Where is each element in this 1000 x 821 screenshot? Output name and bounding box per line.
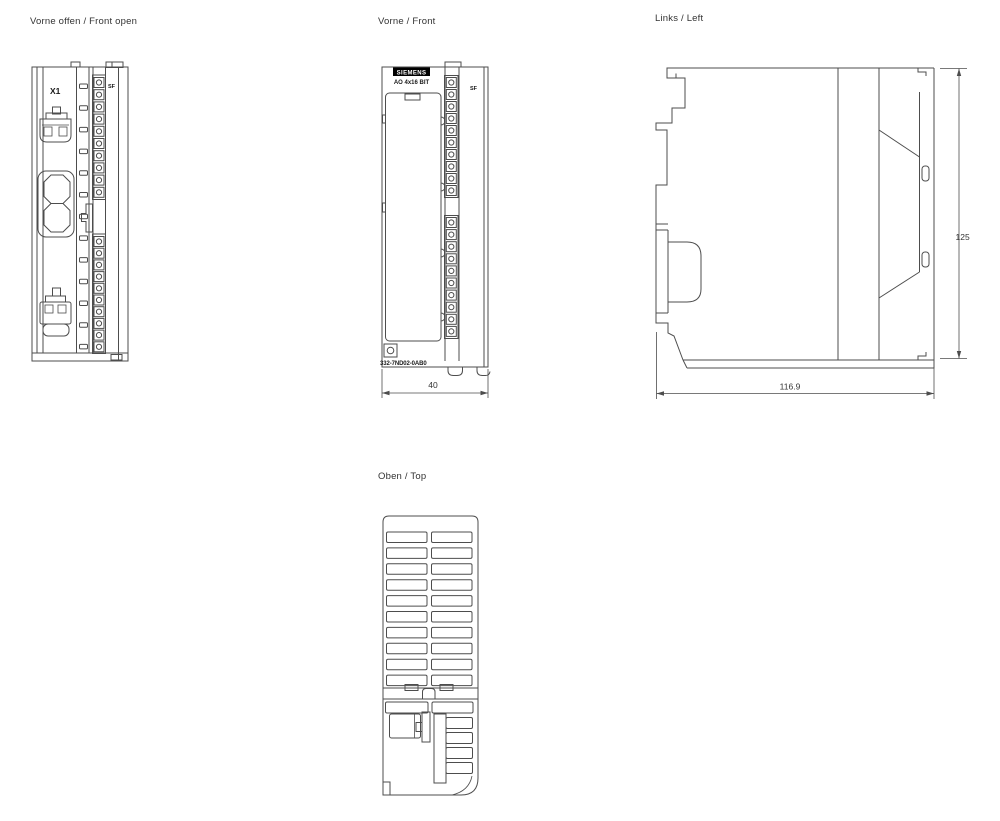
depth-dimension: 116.9 [657,332,935,399]
terminal-screw [449,268,454,273]
mounting-screw [384,344,397,357]
terminal-square [94,342,104,352]
slot [80,106,88,111]
slot [432,643,473,654]
bottom-tab-left [448,367,463,376]
terminal-square [94,260,104,270]
slot [80,193,88,198]
terminal-screw [96,117,101,122]
front-door [383,93,446,341]
terminal-screw [96,333,101,338]
terminal-screw [449,176,454,181]
terminal-square [446,126,456,136]
terminal-square [446,114,456,124]
slot [387,532,428,543]
sf-led-label: SF [108,84,116,90]
side-slot-upper [922,166,929,181]
terminal-square [446,102,456,112]
part-number-label: 332-7ND02-0AB0 [380,361,427,367]
terminal-screw [449,220,454,225]
slot-bars [80,84,88,349]
terminal-screw [449,244,454,249]
terminal-square [94,114,104,124]
terminal-square [446,242,456,252]
door-bottom-tab [111,355,122,361]
slot [80,301,88,306]
width-dimension: 40 [382,369,488,398]
terminal-screw [96,129,101,134]
vent-slots-right [432,532,473,686]
terminal-square [94,330,104,340]
slot [80,149,88,154]
terminal-square [446,326,456,336]
terminal-screw [449,164,454,169]
terminal-screw [449,116,454,121]
top-band [383,685,478,700]
slot [387,659,428,670]
top-title: Oben / Top [378,471,426,482]
slot [80,323,88,328]
terminal-screw [96,104,101,109]
terminal-slot-column [77,67,90,353]
slot [446,733,473,744]
lower-section [386,702,474,783]
terminal-square [446,150,456,160]
terminal-screw-column [445,67,460,361]
gland-octagon-lower [44,204,70,233]
center-tab [423,689,436,700]
gland-octagon-upper [44,175,70,204]
terminal-square [94,102,104,112]
terminal-screw [96,274,101,279]
bus-connector-protrusion [656,224,701,313]
terminal-square [446,218,456,228]
terminal-screw [96,92,101,97]
side-slot-lower [922,252,929,267]
slot [432,532,473,543]
terminal-square [94,187,104,197]
terminal-screw [96,178,101,183]
slot [80,258,88,263]
top-outline [383,516,478,795]
slot [446,718,473,729]
terminal-square [446,174,456,184]
slot [80,279,88,284]
terminal-square [446,314,456,324]
corner-arc [452,776,472,795]
sf-led-label: SF [470,86,478,92]
terminal-square [94,139,104,149]
terminal-square [94,126,104,136]
front-open-view: X1 SF [25,55,140,370]
slot [387,580,428,591]
terminal-screw [449,317,454,322]
terminal-screw [96,153,101,158]
terminal-screw [449,256,454,261]
terminal-screw [96,190,101,195]
slot [80,214,88,219]
module-type-label: AO 4x16 BIT [394,80,430,86]
vent-slots-left [387,532,428,686]
terminal-square [94,237,104,247]
terminal-screw [449,305,454,310]
slot [387,643,428,654]
terminal-square [94,90,104,100]
left-outline [656,68,934,368]
terminal-screw [449,92,454,97]
terminal-square [446,290,456,300]
height-dimension: 125 [940,69,970,359]
terminal-square [94,295,104,305]
terminal-square [94,175,104,185]
slot [387,548,428,559]
terminal-screw [449,232,454,237]
terminal-square [446,254,456,264]
terminal-square [94,248,104,258]
terminal-square [446,90,456,100]
terminal-screw [96,344,101,349]
terminal-screw [449,329,454,334]
terminal-square [94,318,104,328]
terminal-screw [449,128,454,133]
terminal-screw [96,80,101,85]
din-hook-bottom [918,352,926,360]
terminal-screw [449,188,454,193]
bottom-latch [40,288,71,336]
slot [432,564,473,575]
terminal-screw [449,280,454,285]
left-title: Links / Left [655,13,703,24]
slot [432,548,473,559]
slot [432,580,473,591]
terminal-group-top [94,78,104,198]
width-dimension-value: 40 [428,380,438,390]
terminal-screw [96,297,101,302]
terminal-screw [449,140,454,145]
terminal-group-bottom [446,218,456,337]
wide-slot-right [432,702,473,713]
terminal-screw [96,251,101,256]
left-view: 125 116.9 [645,55,990,405]
slot [387,564,428,575]
terminal-screw [449,293,454,298]
terminal-square [446,266,456,276]
slot [446,763,473,774]
terminal-group-bottom [94,237,104,352]
version-slot [405,94,420,100]
terminal-screw [449,80,454,85]
slot [446,748,473,759]
terminal-square [446,230,456,240]
slot [387,612,428,623]
front-title: Vorne / Front [378,16,436,27]
front-view: SIEMENS AO 4x16 BIT SF 332-7ND02-0AB0 [375,55,495,405]
slot [80,344,88,349]
terminal-screw [96,262,101,267]
siemens-logo: SIEMENS [393,68,430,77]
top-hook-tab [71,62,80,67]
terminal-square [94,151,104,161]
terminal-screw [96,165,101,170]
slot [432,659,473,670]
bottom-slot-column [446,718,473,774]
front-open-title: Vorne offen / Front open [30,16,137,27]
terminal-square [94,307,104,317]
terminal-square [94,272,104,282]
terminal-square [94,163,104,173]
slot [432,612,473,623]
top-latch [40,107,71,142]
slot [80,236,88,241]
x1-connector-label: X1 [50,86,61,96]
terminal-screw [96,321,101,326]
wide-slot-left [386,702,429,713]
depth-dimension-value: 116.9 [780,382,801,392]
terminal-screw [96,239,101,244]
siemens-brand-text: SIEMENS [397,70,427,76]
top-view [375,505,490,810]
slot [387,596,428,607]
terminal-square [94,78,104,88]
terminal-screw [96,286,101,291]
terminal-square [446,138,456,148]
terminal-square [446,186,456,196]
top-hook-tab [445,62,461,67]
left-body-lines [838,68,929,360]
bottom-left-notch [383,782,390,795]
front-outline [382,62,490,376]
slot [80,127,88,131]
terminal-group-top [446,78,456,196]
slot [80,171,88,176]
terminal-screw [449,104,454,109]
slot [432,596,473,607]
terminal-square [446,302,456,312]
slot [80,84,88,89]
slot [387,627,428,638]
dimension-drawing-page: Vorne offen / Front open Vorne / Front L… [0,0,1000,821]
slot [432,627,473,638]
terminal-square [446,78,456,88]
terminal-screw [96,309,101,314]
terminal-screw [449,152,454,157]
terminal-square [94,283,104,293]
height-dimension-value: 125 [956,232,970,242]
latch-lever [668,242,701,302]
terminal-square [446,162,456,172]
din-hook-top [918,68,926,76]
terminal-square [446,278,456,288]
terminal-screw [96,141,101,146]
